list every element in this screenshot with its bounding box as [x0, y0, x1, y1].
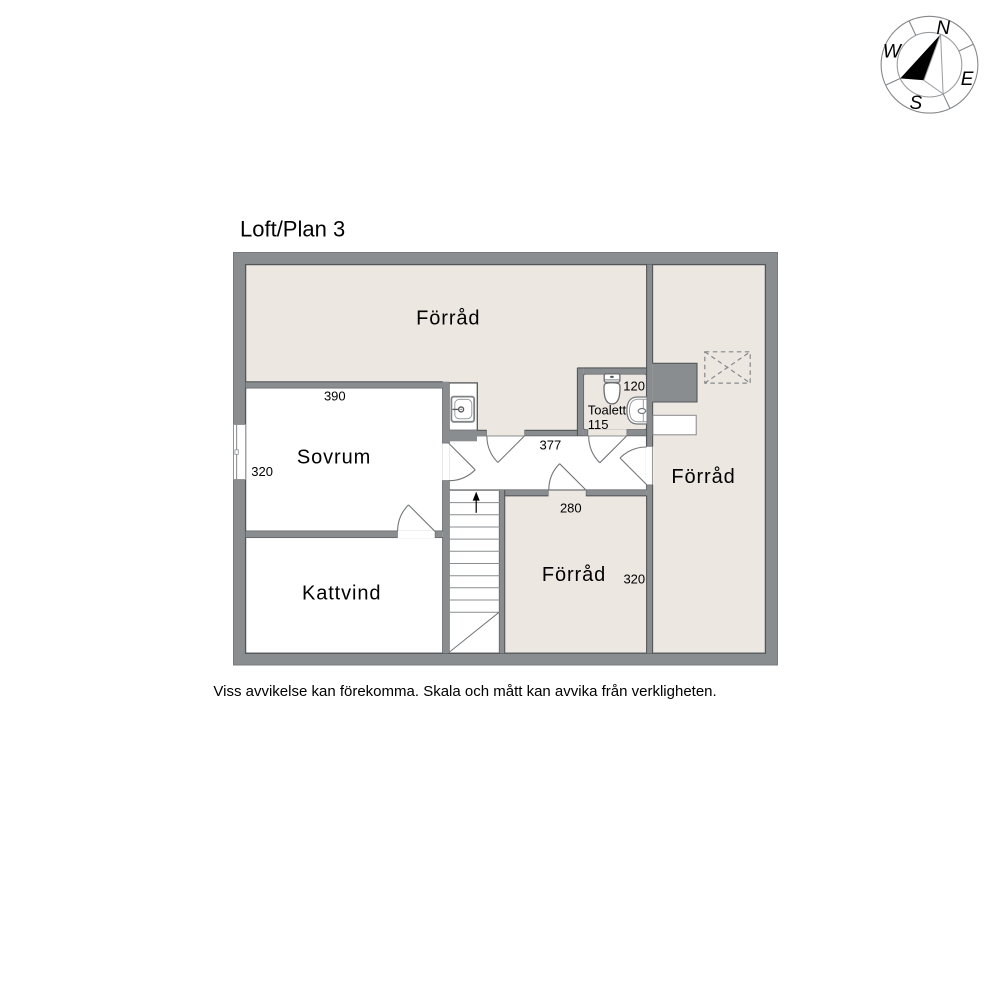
- svg-text:377: 377: [540, 438, 562, 453]
- svg-text:Toalett: Toalett: [588, 402, 627, 417]
- svg-text:E: E: [961, 69, 974, 90]
- svg-text:Loft/Plan 3: Loft/Plan 3: [240, 217, 345, 242]
- svg-text:320: 320: [623, 572, 645, 587]
- svg-text:320: 320: [251, 464, 273, 479]
- svg-text:N: N: [936, 18, 950, 39]
- svg-text:S: S: [909, 93, 922, 114]
- svg-text:Viss avvikelse kan förekomma.: Viss avvikelse kan förekomma. Skala och …: [213, 683, 716, 700]
- svg-text:Förråd: Förråd: [671, 466, 735, 488]
- svg-text:Förråd: Förråd: [542, 564, 606, 586]
- svg-text:120: 120: [623, 378, 645, 393]
- svg-text:W: W: [883, 42, 903, 63]
- svg-text:115: 115: [588, 417, 609, 432]
- svg-text:390: 390: [324, 389, 346, 404]
- svg-text:Kattvind: Kattvind: [302, 582, 381, 604]
- svg-text:280: 280: [560, 500, 582, 515]
- svg-text:Förråd: Förråd: [416, 308, 480, 330]
- svg-text:Sovrum: Sovrum: [297, 447, 371, 469]
